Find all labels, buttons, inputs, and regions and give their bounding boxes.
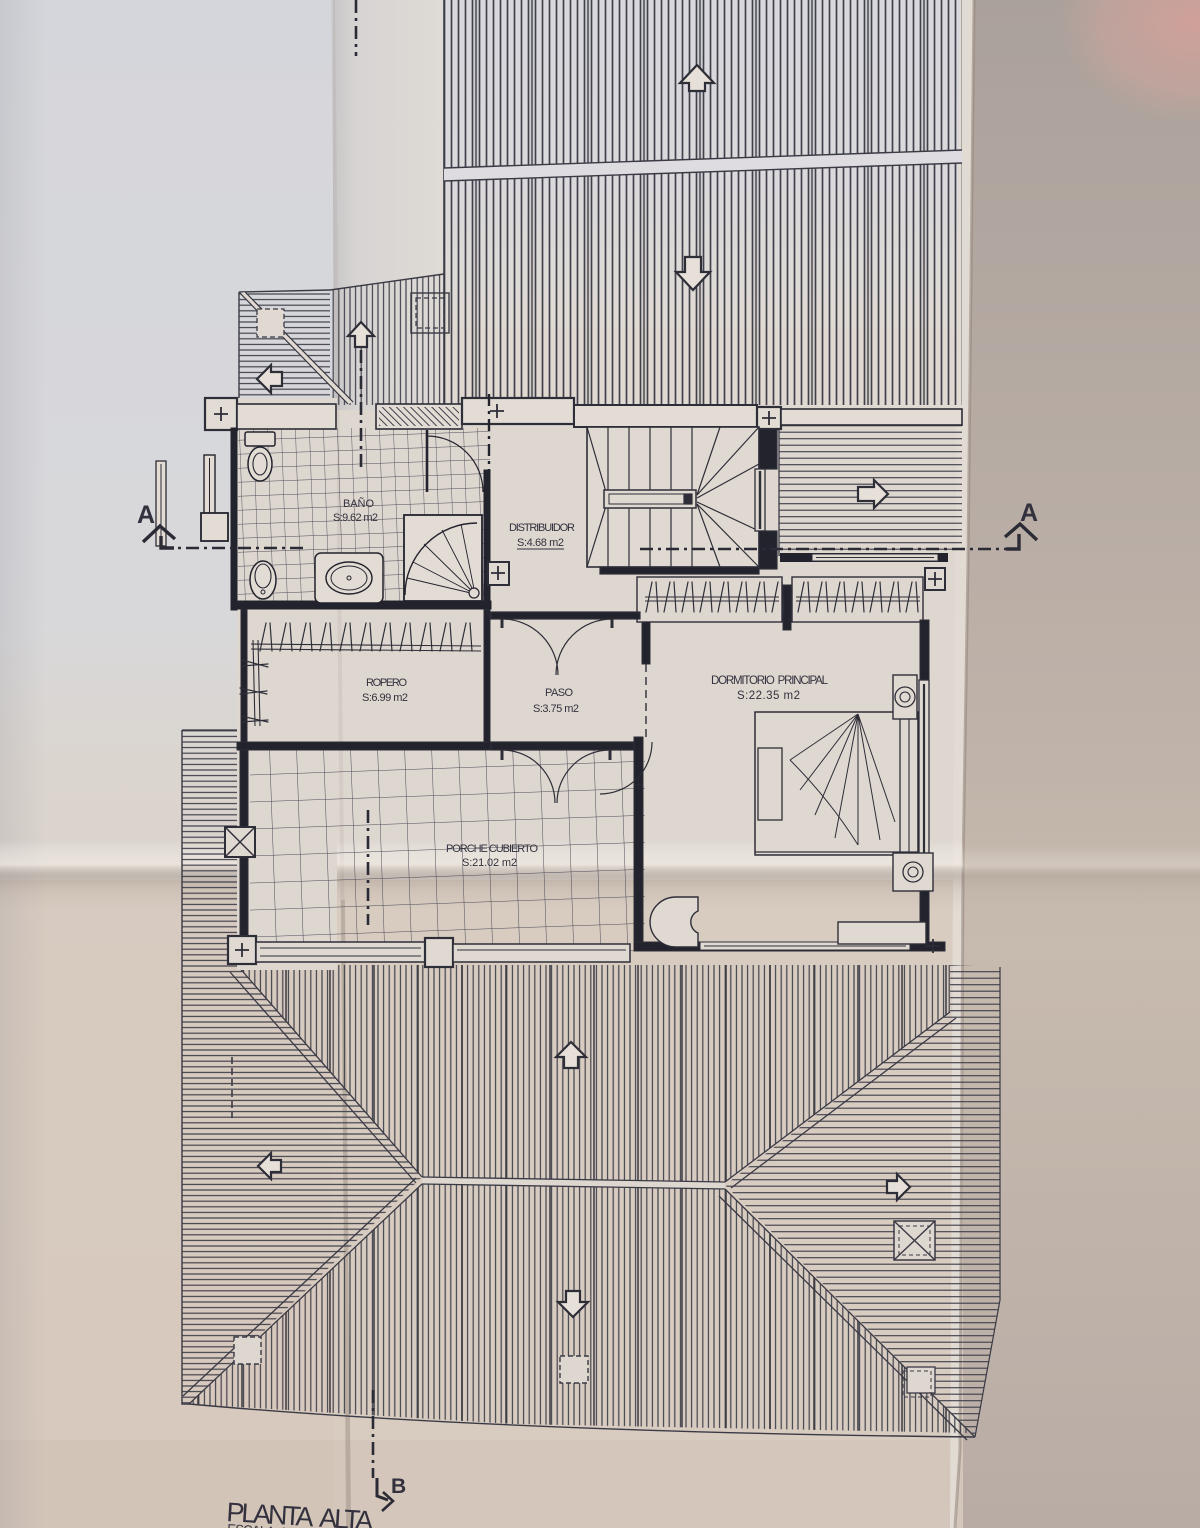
- svg-text:B: B: [391, 1475, 406, 1498]
- svg-text:DISTRIBUIDOR: DISTRIBUIDOR: [509, 522, 575, 534]
- svg-text:A: A: [137, 501, 155, 529]
- svg-text:S:6.99 m2: S:6.99 m2: [362, 692, 408, 704]
- svg-text:S:22.35 m2: S:22.35 m2: [737, 690, 800, 702]
- svg-text:S:3.75 m2: S:3.75 m2: [533, 703, 579, 715]
- svg-text:BAÑO: BAÑO: [343, 497, 374, 510]
- svg-text:S:4.68 m2: S:4.68 m2: [517, 537, 564, 549]
- svg-text:A: A: [1020, 499, 1038, 527]
- svg-text:PASO: PASO: [545, 687, 573, 699]
- svg-text:S:21.02 m2: S:21.02 m2: [462, 857, 517, 869]
- svg-text:PORCHE CUBIERTO: PORCHE CUBIERTO: [446, 843, 538, 855]
- svg-text:DORMITORIO PRINCIPAL: DORMITORIO PRINCIPAL: [711, 675, 829, 687]
- svg-text:ROPERO: ROPERO: [366, 677, 407, 689]
- svg-text:S:9.62 m2: S:9.62 m2: [333, 512, 378, 524]
